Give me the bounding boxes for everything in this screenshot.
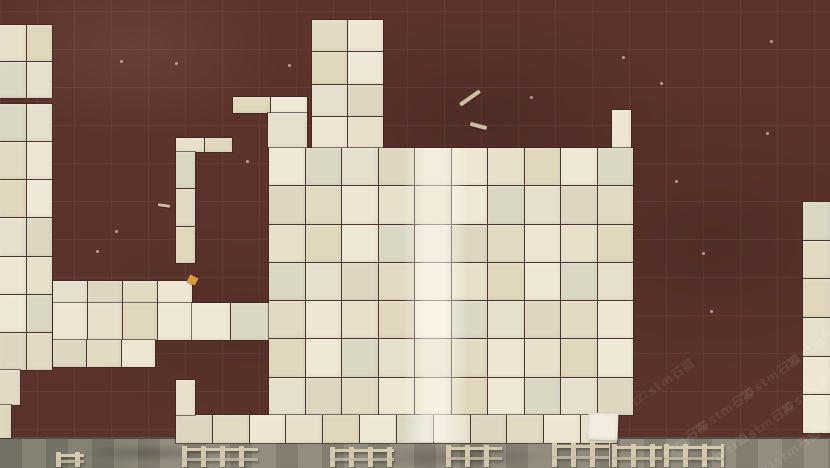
tile-cell xyxy=(488,378,524,415)
stonecat-watermark: stm石猫 xyxy=(689,383,758,438)
debris-stick xyxy=(158,203,170,208)
dust-speck xyxy=(766,132,769,135)
tile-cell xyxy=(0,257,26,294)
tile-cell xyxy=(452,148,488,185)
tile-cell xyxy=(176,380,195,415)
tile-cell xyxy=(176,227,195,263)
dust-speck xyxy=(120,60,123,63)
tile-cell xyxy=(415,225,451,262)
tile-cell xyxy=(342,263,378,300)
dust-speck xyxy=(710,310,713,313)
dust-speck xyxy=(288,64,291,67)
tile-cell xyxy=(525,378,561,415)
dust-speck xyxy=(770,40,773,43)
stonecat-logo-icon xyxy=(632,391,648,405)
tile-cell xyxy=(123,303,157,340)
tile-cell xyxy=(88,281,122,303)
stonecat-logo-icon xyxy=(778,401,794,415)
tile-cell xyxy=(269,301,305,338)
tile-cell xyxy=(598,301,634,338)
tile-region-hook-cap xyxy=(176,138,232,152)
tile-cell xyxy=(306,186,342,223)
tile-cell xyxy=(312,20,347,51)
tile-region-right-edge-column xyxy=(803,202,830,433)
tile-cell xyxy=(158,281,192,303)
tile-cell xyxy=(452,301,488,338)
tile-cell xyxy=(561,378,597,415)
tile-cell xyxy=(342,378,378,415)
tile-cell xyxy=(269,148,305,185)
tile-cell xyxy=(452,186,488,223)
tile-cell xyxy=(598,378,634,415)
metal-trestle-stand xyxy=(612,444,662,467)
tile-cell xyxy=(525,186,561,223)
tile-cell xyxy=(53,281,87,303)
metal-trestle-stand xyxy=(446,445,502,467)
tile-region-top-ledge xyxy=(233,97,307,113)
tile-region-main-blob xyxy=(269,148,633,415)
tile-cell xyxy=(269,263,305,300)
tile-cell xyxy=(803,395,830,433)
tile-region-top-ledge-leg xyxy=(268,113,307,148)
tile-laying-floor-photo: stm石猫stm石猫stm石猫stm石猫stm石猫stm石猫stm石猫stm石猫… xyxy=(0,0,830,468)
tile-cell xyxy=(379,263,415,300)
tile-region-bottom-connector xyxy=(176,380,195,415)
dust-speck xyxy=(115,230,118,233)
tile-cell xyxy=(803,241,830,279)
tile-cell xyxy=(612,110,631,148)
tile-cell xyxy=(525,263,561,300)
dust-speck xyxy=(660,82,663,85)
tile-cell xyxy=(598,339,634,376)
tile-cell xyxy=(312,85,347,116)
dust-speck xyxy=(175,62,178,65)
tile-cell xyxy=(0,104,26,141)
tile-cell xyxy=(268,113,307,148)
tile-cell xyxy=(123,281,157,303)
tile-cell xyxy=(488,225,524,262)
tile-cell xyxy=(323,415,359,443)
tile-cell xyxy=(598,148,634,185)
tile-cell xyxy=(561,339,597,376)
tile-cell xyxy=(379,148,415,185)
tile-cell xyxy=(488,186,524,223)
tile-region-blob-nub xyxy=(612,110,631,148)
tile-cell xyxy=(803,279,830,317)
tile-cell xyxy=(306,339,342,376)
tile-cell xyxy=(231,303,269,340)
tile-cell xyxy=(561,186,597,223)
tile-cell xyxy=(27,62,53,98)
tile-cell xyxy=(27,218,53,255)
tile-cell xyxy=(176,152,195,188)
tile-region-left-strip xyxy=(0,104,52,370)
tile-cell xyxy=(415,378,451,415)
metal-trestle-stand xyxy=(552,443,610,467)
tile-cell xyxy=(306,378,342,415)
tile-cell xyxy=(488,301,524,338)
stonecat-logo-icon xyxy=(784,354,800,368)
tile-cell xyxy=(561,301,597,338)
tile-cell xyxy=(192,303,230,340)
tile-cell xyxy=(0,62,26,98)
tile-cell xyxy=(250,415,286,443)
tile-cell xyxy=(122,340,155,367)
tile-cell xyxy=(158,303,192,340)
tile-cell xyxy=(379,301,415,338)
tile-cell xyxy=(0,218,26,255)
tile-cell xyxy=(507,415,543,443)
tile-cell xyxy=(415,263,451,300)
tile-cell xyxy=(27,180,53,217)
tile-cell xyxy=(27,142,53,179)
watermark-text: stm石猫 xyxy=(704,383,758,428)
tile-region-mid-block-ext xyxy=(192,303,269,340)
dust-speck xyxy=(675,180,678,183)
tile-cell xyxy=(306,225,342,262)
tile-cell xyxy=(348,52,383,83)
tile-cell xyxy=(271,97,308,113)
tile-cell xyxy=(205,138,233,152)
tile-cell xyxy=(434,415,470,443)
tile-cell xyxy=(488,263,524,300)
tile-region-hook-stem xyxy=(176,152,195,263)
tile-cell xyxy=(415,339,451,376)
tile-cell xyxy=(269,339,305,376)
tile-cell xyxy=(803,318,830,356)
tile-cell xyxy=(0,25,26,61)
tile-cell xyxy=(525,301,561,338)
tile-cell xyxy=(379,186,415,223)
tile-cell xyxy=(561,225,597,262)
tile-region-mid-block-top xyxy=(53,281,192,303)
tile-cell xyxy=(342,225,378,262)
tile-cell xyxy=(452,225,488,262)
tile-cell xyxy=(360,415,396,443)
tile-cell xyxy=(348,85,383,116)
dust-speck xyxy=(622,56,625,59)
tile-cell xyxy=(0,333,26,370)
debris-stick xyxy=(459,89,481,106)
tile-cell xyxy=(269,186,305,223)
metal-trestle-stand xyxy=(56,452,84,467)
tile-cell xyxy=(306,148,342,185)
dust-speck xyxy=(96,250,99,253)
tile-cell xyxy=(0,370,20,405)
tile-cell xyxy=(598,186,634,223)
tile-cell xyxy=(452,263,488,300)
tile-cell xyxy=(27,257,53,294)
tile-cell xyxy=(176,189,195,225)
tile-region-mid-block-mid xyxy=(53,303,192,340)
stonecat-logo-icon xyxy=(738,387,754,401)
tile-cell xyxy=(803,202,830,240)
tile-cell xyxy=(488,339,524,376)
tile-cell xyxy=(88,303,122,340)
stonecat-watermark: stm石猫 xyxy=(629,354,698,409)
tile-cell xyxy=(415,186,451,223)
tile-cell xyxy=(379,225,415,262)
tile-cell xyxy=(525,339,561,376)
tile-cell xyxy=(269,225,305,262)
tile-cell xyxy=(0,180,26,217)
tile-cell xyxy=(348,117,383,148)
tile-cell xyxy=(598,225,634,262)
tile-cell xyxy=(598,263,634,300)
tile-cell xyxy=(312,117,347,148)
dust-speck xyxy=(530,96,533,99)
tile-region-top-column xyxy=(312,20,383,148)
tile-cell xyxy=(87,340,120,367)
tile-cell xyxy=(27,295,53,332)
tile-cell xyxy=(525,148,561,185)
tile-region-left-top-block xyxy=(0,25,52,98)
tile-cell xyxy=(233,97,270,113)
tile-cell xyxy=(176,415,212,443)
tile-cell xyxy=(525,225,561,262)
tile-cell xyxy=(342,186,378,223)
tile-cell xyxy=(415,148,451,185)
tile-cell xyxy=(0,295,26,332)
tile-cell xyxy=(0,142,26,179)
tile-cell xyxy=(561,263,597,300)
watermark-text: stm石猫 xyxy=(644,354,698,399)
tile-cell xyxy=(213,415,249,443)
tile-cell xyxy=(803,357,830,395)
dust-speck xyxy=(246,160,249,163)
tile-cell xyxy=(452,378,488,415)
tile-cell xyxy=(348,20,383,51)
tile-cell xyxy=(176,138,204,152)
tile-cell xyxy=(415,301,451,338)
tile-cell xyxy=(342,339,378,376)
tile-cell xyxy=(397,415,433,443)
watermark-text: stm石猫 xyxy=(744,397,798,442)
tile-region-left-strip-foot xyxy=(0,405,11,438)
tile-cell xyxy=(53,303,87,340)
tile-cell xyxy=(306,301,342,338)
tile-cell xyxy=(312,52,347,83)
metal-trestle-stand xyxy=(330,447,394,467)
tile-cell xyxy=(0,405,11,438)
tile-cell xyxy=(379,339,415,376)
debris-stick xyxy=(470,122,487,130)
tile-cell xyxy=(306,263,342,300)
tile-region-left-strip-step xyxy=(0,370,20,405)
dust-speck xyxy=(702,252,705,255)
loose-white-tile xyxy=(588,412,619,440)
tile-region-blob-bottom-row xyxy=(176,415,617,443)
tile-cell xyxy=(342,148,378,185)
tile-cell xyxy=(561,148,597,185)
tile-cell xyxy=(488,148,524,185)
tile-region-mid-block-bottom xyxy=(53,340,155,367)
tile-cell xyxy=(452,339,488,376)
tile-cell xyxy=(53,340,86,367)
tile-cell xyxy=(27,333,53,370)
tile-cell xyxy=(342,301,378,338)
metal-trestle-stand xyxy=(182,446,258,467)
tile-cell xyxy=(379,378,415,415)
stonecat-watermark: stm石猫 xyxy=(735,350,804,405)
watermark-text: stm石猫 xyxy=(750,350,804,395)
tile-cell xyxy=(27,25,53,61)
tile-cell xyxy=(286,415,322,443)
tile-cell xyxy=(471,415,507,443)
tile-cell xyxy=(269,378,305,415)
metal-trestle-stand xyxy=(664,444,724,467)
tile-cell xyxy=(27,104,53,141)
tile-cell xyxy=(544,415,580,443)
stonecat-logo-icon xyxy=(692,420,708,434)
